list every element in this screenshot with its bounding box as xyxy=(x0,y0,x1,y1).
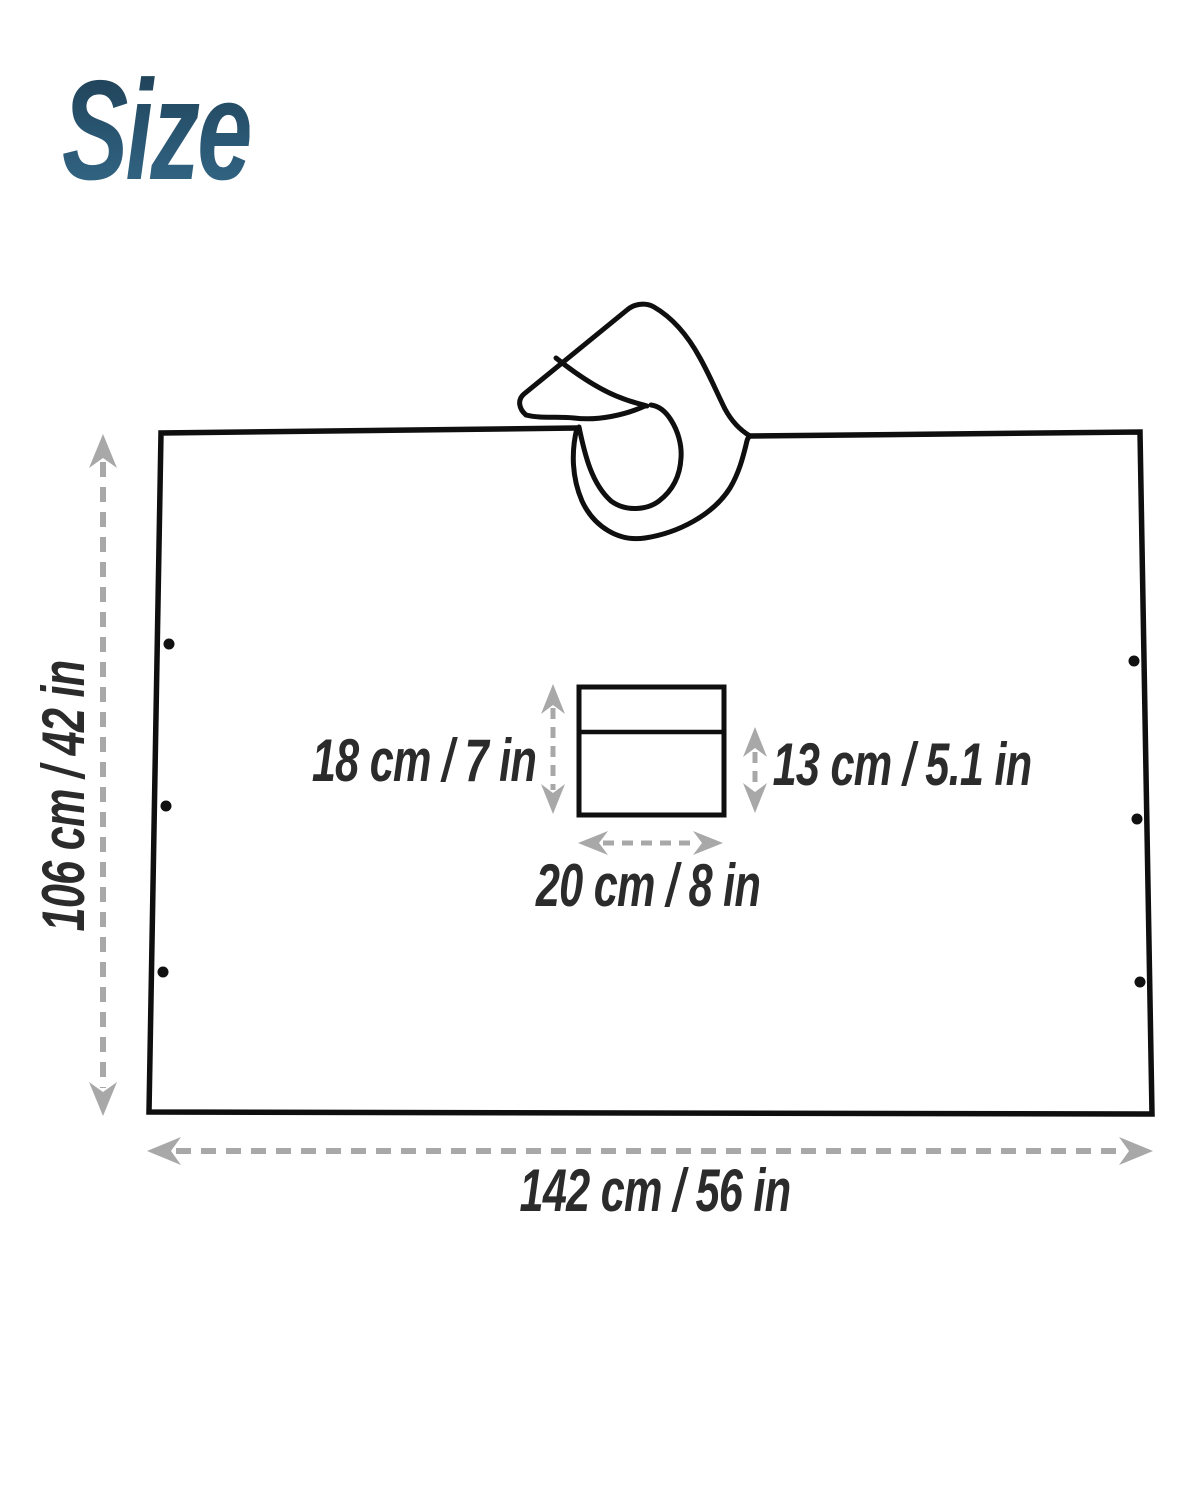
snap-dot xyxy=(161,801,172,812)
size-chart-page: Size xyxy=(0,0,1200,1500)
poncho-height-label: 106 cm / 42 in xyxy=(34,661,94,932)
arrowhead-left-icon xyxy=(147,1137,181,1165)
pocket-outline xyxy=(579,687,724,815)
snap-dot xyxy=(1129,656,1140,667)
pocket-drawing xyxy=(577,687,726,815)
snap-dot xyxy=(158,967,169,978)
pocket-height-label: 18 cm / 7 in xyxy=(312,731,536,791)
snap-dot xyxy=(1132,814,1143,825)
pocket-lower-height-arrow xyxy=(743,727,767,813)
hood-brim-curve xyxy=(526,406,645,419)
hood-drawing xyxy=(520,304,750,538)
poncho-width-label: 142 cm / 56 in xyxy=(520,1161,791,1221)
pocket-width-label: 20 cm / 8 in xyxy=(536,856,760,916)
pocket-height-arrow xyxy=(541,684,565,814)
snap-dot xyxy=(164,639,175,650)
arrowhead-down-icon xyxy=(743,783,767,813)
hood-fold-line xyxy=(556,358,647,406)
pocket-lower-height-label: 13 cm / 5.1 in xyxy=(773,735,1032,795)
arrowhead-right-icon xyxy=(1119,1137,1153,1165)
snap-dot xyxy=(1135,977,1146,988)
